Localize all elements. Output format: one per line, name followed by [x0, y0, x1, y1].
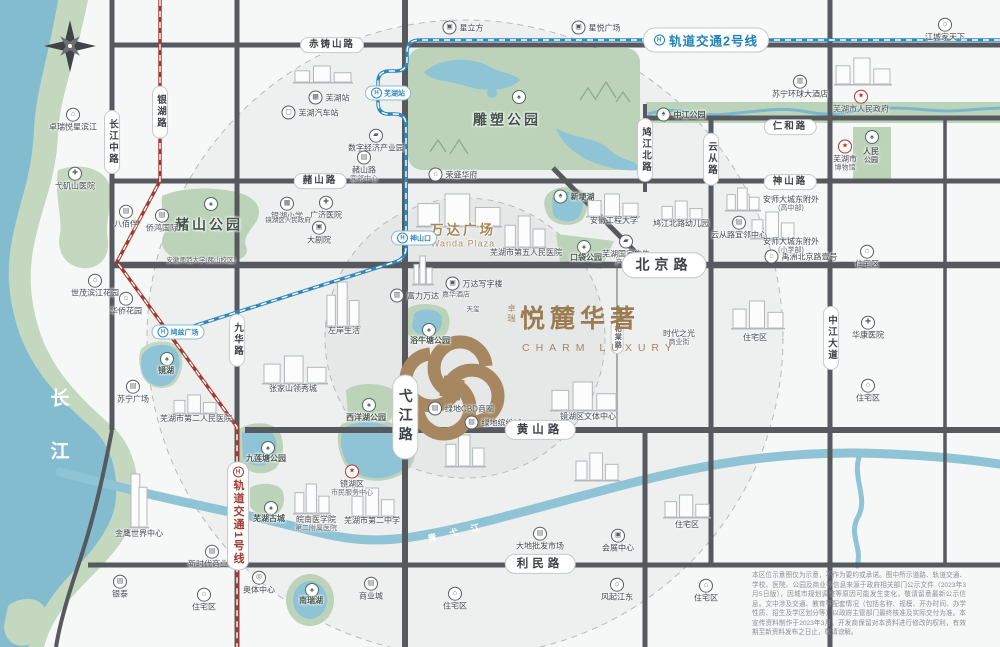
poi-label: ▤云从路宜邻中心 — [711, 216, 767, 241]
metro-station-shenshankou-station: H神山口 — [391, 231, 437, 246]
home-icon: ⌂ — [448, 587, 462, 601]
label-line: 大地批发市场 — [516, 542, 564, 552]
poi-label: 安徽师范大学(赭山校区) — [166, 257, 235, 265]
metro-line2-label: H轨道交通2号线 — [643, 28, 769, 53]
poi-label: 住宅区 — [743, 333, 767, 343]
shop-icon: ▤ — [357, 151, 371, 165]
park-label-sculpture-park: 雕塑公园 — [473, 112, 541, 129]
poi-label: 住宅区 — [675, 520, 699, 530]
label-line: (高中部) — [778, 205, 804, 213]
hotel-icon: ▥ — [793, 75, 807, 89]
home-icon: ⌂ — [429, 168, 443, 182]
label-line: 住宅区 — [743, 333, 767, 343]
label-line: 住宅区 — [443, 602, 467, 612]
road-label-yuncong-road: 云从路 — [703, 133, 719, 186]
label-line: 芜湖站 — [326, 93, 350, 103]
map-labels-layer: 赤铸山路赭山路神山路仁和路北京路黄山路利民路长江中路银湖路云从路鸠江北路九华路中… — [0, 0, 1000, 647]
park-label-xiyanghu-park: 西洋湖公园 — [346, 413, 386, 423]
road-label-jiujiangbei-road: 鸠江北路 — [637, 118, 653, 182]
stad-icon: ◎ — [252, 571, 266, 585]
label-line: 安徽师范大学(赭山校区) — [166, 257, 235, 265]
poi-label: 万达广场Wanda Plaza — [430, 223, 496, 250]
map-disclaimer: 本区位示意图仅为示意，不作为要约或承诺。图中所示道路、轨道交通、学校、医院、公园… — [752, 571, 966, 638]
poi-label: 安徽工程大学 — [590, 216, 638, 226]
poi-label: ▢芜湖汽车站 — [282, 106, 339, 121]
poi-label: ⌂卓瑞悦星滨江 — [49, 108, 97, 133]
poi-label: 鸠江北路幼儿园 — [653, 219, 709, 229]
label-line: 赭山公园 — [175, 217, 243, 234]
home-icon: ⌂ — [88, 274, 102, 288]
label-line: 万达广场 — [430, 223, 496, 239]
label-line: 第二附属医院 — [295, 525, 337, 533]
label-line: 人民 — [863, 147, 879, 157]
label-line: 张家山领秀城 — [269, 384, 317, 394]
poi-label: ▣星立方 — [443, 21, 484, 36]
road-label-changjiangzhong-road: 长江中路 — [104, 110, 120, 174]
label-line: 大剧院 — [307, 236, 331, 246]
park-label-nanruihu-lake: 南瑞湖 — [299, 596, 323, 606]
metro-station-wuhu-station: H芜湖站 — [365, 86, 411, 101]
label-line: 左岸生活 — [328, 326, 360, 336]
tree-icon: ♠ — [422, 323, 436, 337]
label-line: 芜湖市第二中学 — [344, 516, 400, 526]
shop-icon: ▤ — [732, 216, 746, 230]
label-line: 奥体中心 — [243, 586, 275, 596]
shop-icon: ▤ — [364, 577, 378, 591]
label-line: 世茂滨江花园 — [71, 289, 119, 299]
park-label-jiuliantang-park: 九莲塘公园 — [246, 454, 286, 464]
location-map: 赤铸山路赭山路神山路仁和路北京路黄山路利民路长江中路银湖路云从路鸠江北路九华路中… — [0, 0, 1000, 647]
shop-icon: ▤ — [113, 575, 127, 589]
park-label-zhongjiang-park: ♠中江公园 — [657, 108, 706, 123]
poi-label: 安师大城东附外(高中部) — [763, 195, 819, 213]
label-line: 八佰伴 — [114, 220, 138, 230]
poi-label: ▤八佰伴 — [114, 205, 138, 230]
label-line: 银泰 — [112, 590, 128, 600]
poi-label: ✚华康医院 — [852, 316, 884, 341]
label-line: 安师大城东附外 — [763, 195, 819, 205]
label-line: 华康医院 — [852, 331, 884, 341]
fact-icon: ▰ — [619, 235, 633, 249]
label-line: 弋矶山医院 — [55, 182, 95, 192]
poi-label: ▤赭山路宜邻中心 — [350, 151, 378, 184]
build-icon: ▣ — [611, 529, 625, 543]
poi-label: ⌂住宅区 — [192, 588, 216, 613]
poi-label: ▤商业城 — [359, 577, 383, 602]
star-icon: ★ — [345, 465, 359, 479]
label-line: 住宅区 — [856, 394, 880, 404]
label-line: (小学部) — [778, 247, 804, 255]
build-icon: ▣ — [572, 21, 586, 35]
label-line: 苏宁环球大酒店 — [772, 90, 828, 100]
poi-label: ▣星悦广场 — [572, 21, 621, 36]
park-label-wuhu-ancient-town: 芜湖古城 — [253, 514, 285, 524]
label-line: 芜湖市 — [833, 155, 857, 165]
label-line: 苏宁广场 — [117, 395, 149, 405]
metro-logo-icon: H — [654, 35, 665, 46]
home-icon: ⌂ — [197, 588, 211, 602]
home-icon: ⌂ — [699, 579, 713, 593]
label-line: 住宅区 — [855, 260, 879, 270]
road-label-chizhushan-road: 赤铸山路 — [300, 37, 364, 53]
poi-label: ◎奥体中心 — [243, 571, 275, 596]
label-line: 嘉华酒店 — [442, 292, 470, 300]
tree-icon: ♠ — [261, 441, 275, 455]
build-icon: ▣ — [443, 21, 457, 35]
label-line: 市民服务中心 — [331, 489, 373, 497]
label-line: 住宅区 — [694, 594, 718, 604]
poi-label: ⌂风起江东 — [601, 578, 633, 603]
label-line: 华侨花园 — [110, 307, 142, 317]
tree-icon: ♠ — [362, 398, 376, 412]
poi-label: 皖南医学院第二附属医院 — [295, 515, 337, 533]
yangtze-label: 江 — [50, 437, 71, 464]
fact-icon: ▰ — [369, 129, 383, 143]
poi-label: 芜湖市第二中学 — [344, 516, 400, 526]
qingyi-river-label: 青弋江 — [426, 517, 493, 545]
label-line: 荣盛华府 — [446, 170, 478, 180]
home-icon: ⌂ — [119, 292, 133, 306]
build-icon: ▣ — [446, 277, 460, 291]
label-line: 宜邻中心 — [350, 175, 378, 183]
park-label-jinghu-lake: 镜湖 — [158, 366, 174, 376]
shop-icon: ▤ — [465, 416, 479, 430]
shop-icon: ▤ — [155, 209, 169, 223]
label-line: 芜湖市第五人民医院 — [490, 248, 562, 258]
poi-label: ⌂住宅区 — [855, 245, 879, 270]
shop-icon: ▤ — [119, 205, 133, 219]
label-line: 住宅区 — [192, 603, 216, 613]
label-line: Wanda Plaza — [431, 239, 495, 250]
label-line: 会展中心 — [602, 544, 634, 554]
school-icon: ▦ — [280, 197, 294, 211]
tree-icon: ♠ — [512, 90, 526, 104]
label-line: 南瑞湖 — [299, 596, 323, 606]
poi-label: 镜湖区人民政府 — [265, 217, 311, 225]
poi-label: ★芜湖市博物馆 — [833, 140, 857, 173]
poi-label: ▣大剧院 — [307, 221, 331, 246]
home-icon: ⌂ — [860, 245, 874, 259]
road-label-shenshan-road: 神山路 — [764, 174, 817, 190]
tree-icon: ♠ — [305, 583, 319, 597]
label-line: 芜湖汽车站 — [299, 108, 339, 118]
label-line: 西洋湖公园 — [346, 413, 386, 423]
label-line: 芜湖古城 — [253, 514, 285, 524]
label-line: 口袋公园 — [570, 253, 602, 263]
poi-label: ▤苏宁广场 — [117, 380, 149, 405]
label-line: 金鹰世界中心 — [115, 529, 163, 539]
label-line: 新埂湖 — [571, 192, 595, 202]
label-line: 中江公园 — [674, 110, 706, 120]
metro-station-jiuzi-square-station: H鸠兹广场 — [152, 325, 205, 340]
label-line: 富力万达 — [407, 291, 439, 301]
poi-label: ⌂住宅区 — [856, 379, 880, 404]
park-label-koudai-park: 口袋公园 — [570, 253, 602, 263]
project-name: 悦麓华著 — [520, 299, 640, 335]
yangtze-label: 长 — [50, 384, 71, 411]
label-line: 星立方 — [460, 23, 484, 33]
park-label-zheshan-park: 赭山公园 — [175, 217, 243, 234]
shop-icon: ▤ — [533, 527, 547, 541]
poi-label: 张家山领秀城 — [269, 384, 317, 394]
poi-label: 芜湖市第五人民医院 — [490, 248, 562, 258]
label-line: 住宅区 — [675, 520, 699, 530]
poi-label: ▣万达写字楼 — [446, 277, 503, 292]
road-label-yinhu-road: 银湖路 — [152, 86, 168, 139]
label-line: 镜湖 — [158, 366, 174, 376]
shop-icon: ▤ — [126, 380, 140, 394]
station-name: 神山口 — [410, 233, 431, 243]
poi-label: ✚弋矶山医院 — [55, 167, 95, 192]
poi-label: ▤绿地CBD商圈 — [428, 402, 494, 417]
road-label-limin-road: 利民路 — [505, 554, 576, 574]
road-label-beijing-road: 北京路 — [622, 252, 707, 278]
poi-label: ▤大地批发市场 — [516, 527, 564, 552]
label-line: 芜湖市人民政府 — [833, 105, 889, 115]
station-name: 芜湖站 — [384, 88, 405, 98]
park-label-renmin-park: 人民公园 — [863, 147, 879, 165]
label-line: 鸠江北路幼儿园 — [653, 219, 709, 229]
poi-label: ▩芜湖站 — [309, 91, 350, 106]
poi-label: 芜湖市第二人民医院 — [160, 414, 232, 424]
star-icon: ★ — [854, 90, 868, 104]
poi-label: 安师大城东附外(小学部) — [763, 237, 819, 255]
label-line: 雕塑公园 — [473, 112, 541, 129]
label-line: 芜湖市第二人民医院 — [160, 414, 232, 424]
tree-icon: ♠ — [657, 108, 671, 122]
tree-icon: ♠ — [577, 240, 591, 254]
poi-label: 左岸生活 — [328, 326, 360, 336]
poi-label: ★镜湖区市民服务中心 — [331, 465, 373, 498]
poi-label: ▥苏宁环球大酒店 — [772, 75, 828, 100]
label-line: 侨鸿国际 — [146, 224, 178, 234]
label-line: 镜湖区 — [340, 480, 364, 490]
tree-icon: ♠ — [264, 501, 278, 515]
build-icon: ▣ — [312, 221, 326, 235]
road-label-yijiang-road: 弋江路 — [392, 375, 418, 460]
project-logo: 卓瑞 悦麓华著 CHARM LUXURY — [506, 299, 678, 354]
hotel-icon: ▥ — [390, 289, 404, 303]
label-line: 九莲塘公园 — [246, 454, 286, 464]
label-line: 公园 — [864, 157, 878, 165]
tree-icon: ♠ — [204, 197, 218, 211]
label-line: 皖南医学院 — [296, 515, 336, 525]
label-line: 赭山路 — [352, 166, 376, 176]
poi-label: ▤侨鸿国际 — [146, 209, 178, 234]
tree-icon: ♠ — [160, 352, 174, 366]
park-label-xingeng-lake: ♠新埂湖 — [554, 190, 595, 205]
label-line: 万达写字楼 — [463, 279, 503, 289]
label-line: 卓瑞悦星滨江 — [49, 123, 97, 133]
hosp-icon: ✚ — [319, 196, 333, 210]
project-brand-prefix: 卓瑞 — [506, 304, 517, 324]
label-line: 安徽工程大学 — [590, 216, 638, 226]
label-line: 绿地CBD商圈 — [445, 404, 494, 414]
metro-line1-label: H轨道交通1号线 — [227, 461, 249, 570]
train-icon: ▩ — [309, 91, 323, 105]
shop-icon: ▤ — [205, 545, 219, 559]
metro-logo-icon: H — [371, 88, 382, 99]
road-label-zhongjiang-avenue: 中江大道 — [823, 306, 839, 370]
poi-label: ▣会展中心 — [602, 529, 634, 554]
road-label-jiuhua-road: 九华路 — [229, 314, 245, 367]
metro-logo-icon: H — [233, 466, 244, 477]
star-icon: ★ — [838, 140, 852, 154]
label-line: 星悦广场 — [589, 23, 621, 33]
label-line: 安师大城东附外 — [763, 237, 819, 247]
metro-line1-name: 轨道交通1号线 — [230, 479, 246, 565]
tree-icon: ♠ — [554, 190, 568, 204]
hosp-icon: ✚ — [861, 316, 875, 330]
project-name-en: CHARM LUXURY — [506, 342, 678, 354]
home-icon: ⌂ — [938, 18, 952, 32]
road-label-huangshan-road: 黄山路 — [505, 420, 576, 440]
tree-icon: ♠ — [865, 130, 879, 144]
poi-label: ⌂荣盛华府 — [429, 168, 478, 183]
poi-label: ★芜湖市人民政府 — [833, 90, 889, 115]
label-line: 天玺 — [467, 306, 480, 314]
label-line: 浴牛塘公园 — [410, 336, 450, 346]
label-line: 江城家天下 — [925, 33, 965, 43]
road-label-zheshan-road: 赭山路 — [294, 173, 347, 189]
home-icon: ⌂ — [861, 379, 875, 393]
label-line: 镜湖区人民政府 — [265, 217, 311, 225]
label-line: 风起江东 — [601, 593, 633, 603]
label-line: 博物馆 — [835, 164, 856, 172]
home-icon: ⌂ — [610, 578, 624, 592]
label-line: 商业城 — [359, 592, 383, 602]
metro-line2-name: 轨道交通2号线 — [669, 31, 758, 50]
metro-logo-icon: H — [397, 233, 408, 244]
metro-logo-icon: H — [158, 327, 169, 338]
shop-icon: ▤ — [428, 402, 442, 416]
bus-icon: ▢ — [282, 106, 296, 120]
hosp-icon: ✚ — [68, 167, 82, 181]
poi-label: ⌂住宅区 — [694, 579, 718, 604]
poi-label: ▤银泰 — [112, 575, 128, 600]
park-label-yuniutang-park: 浴牛塘公园 — [410, 336, 450, 346]
poi-label: ⌂世茂滨江花园 — [71, 274, 119, 299]
poi-label: ⌂住宅区 — [443, 587, 467, 612]
label-line: 云从路宜邻中心 — [711, 231, 767, 241]
poi-label: 金鹰世界中心 — [115, 529, 163, 539]
station-name: 鸠兹广场 — [171, 327, 199, 337]
label-line: 广济医院 — [310, 211, 342, 221]
poi-label: ✚广济医院 — [310, 196, 342, 221]
home-icon: ⌂ — [66, 108, 80, 122]
poi-label: 天玺 — [467, 306, 480, 314]
poi-label: ⌂江城家天下 — [925, 18, 965, 43]
road-label-renhe-road: 仁和路 — [764, 119, 817, 135]
